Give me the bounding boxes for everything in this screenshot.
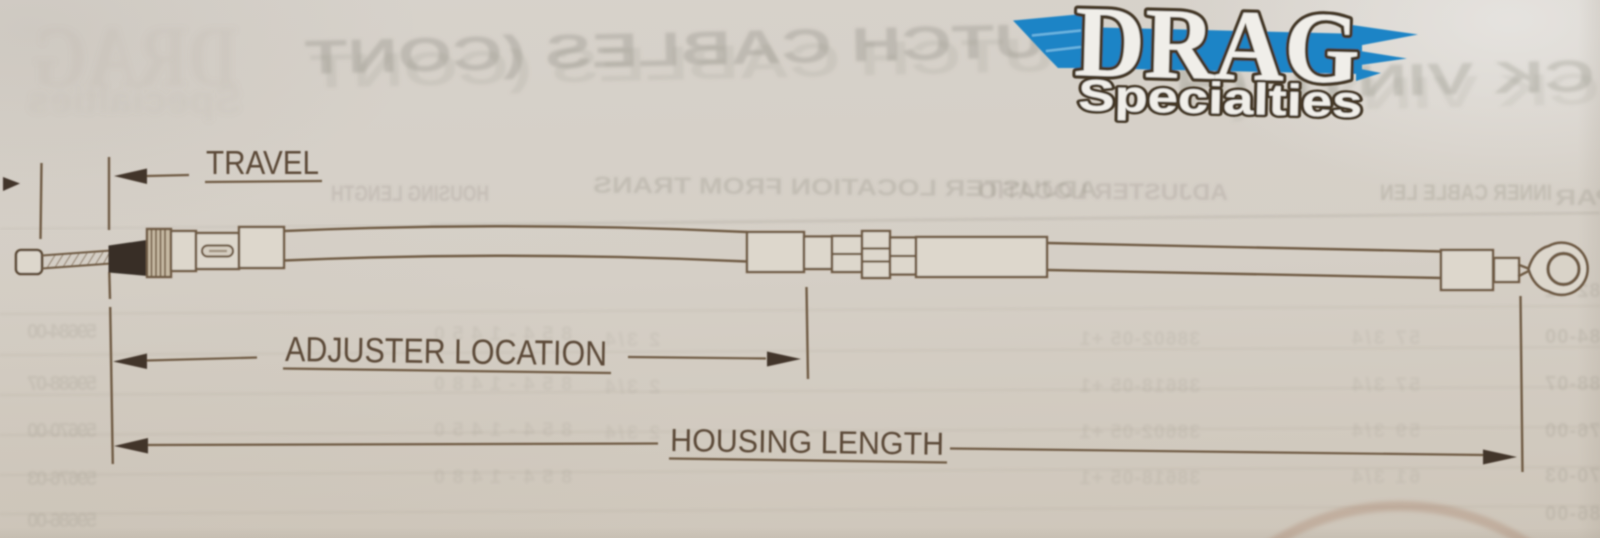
svg-text:59676-00: 59676-00 <box>1545 420 1600 442</box>
svg-text:Specialties: Specialties <box>1078 71 1363 127</box>
svg-text:ADJUSTER LOCATIO: ADJUSTER LOCATIO <box>978 177 1228 205</box>
svg-text:59684-00: 59684-00 <box>27 321 97 343</box>
svg-text:HOUSING LENGTH: HOUSING LENGTH <box>670 422 944 462</box>
svg-text:61 3/4: 61 3/4 <box>1352 467 1420 488</box>
svg-text:ADJUSTER LOCATION: ADJUSTER LOCATION <box>285 330 608 373</box>
svg-text:38602-05 +1: 38602-05 +1 <box>1080 329 1200 350</box>
svg-text:59676-03: 59676-03 <box>27 468 97 490</box>
svg-text:2 3/4: 2 3/4 <box>605 377 660 398</box>
svg-text:59670-00: 59670-00 <box>27 420 97 442</box>
svg-text:2 3/4: 2 3/4 <box>605 423 660 444</box>
svg-text:59688-07: 59688-07 <box>27 373 97 395</box>
svg-text:59686-00: 59686-00 <box>27 510 97 532</box>
svg-text:59670-03: 59670-03 <box>1545 465 1600 487</box>
svg-text:38618-05 +1: 38618-05 +1 <box>1080 376 1200 397</box>
svg-text:854-1450: 854-1450 <box>434 420 572 441</box>
svg-text:59684-00: 59684-00 <box>1545 326 1600 348</box>
svg-text:854-1480: 854-1480 <box>434 467 572 488</box>
svg-text:38618-05 +1: 38618-05 +1 <box>1080 468 1200 489</box>
svg-text:57 3/4: 57 3/4 <box>1352 375 1420 396</box>
svg-text:38602-05 +1: 38602-05 +1 <box>1080 422 1200 443</box>
svg-text:HOUSING LENGTH: HOUSING LENGTH <box>331 181 489 206</box>
svg-text:Specialties: Specialties <box>27 80 242 122</box>
svg-text:59688-07: 59688-07 <box>1545 373 1600 395</box>
svg-text:59686-00: 59686-00 <box>1545 503 1600 525</box>
svg-text:PAR: PAR <box>1555 185 1600 210</box>
svg-text:59 3/4: 59 3/4 <box>1352 421 1420 442</box>
svg-text:2 3/4: 2 3/4 <box>605 330 660 351</box>
svg-text:TRAVEL: TRAVEL <box>206 144 319 181</box>
svg-text:57 3/4: 57 3/4 <box>1352 328 1420 349</box>
svg-text:INNER CABLE LEN: INNER CABLE LEN <box>1380 180 1552 205</box>
